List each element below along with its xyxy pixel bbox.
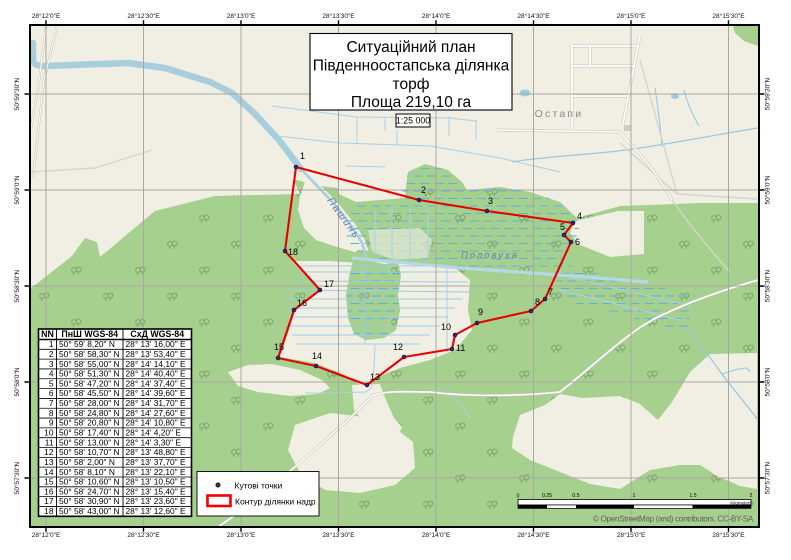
svg-text:28° 14' 14,10" E: 28° 14' 14,10" E <box>126 359 186 369</box>
svg-text:50° 58' 55,00" N: 50° 58' 55,00" N <box>59 359 120 369</box>
svg-text:28°14'30"E: 28°14'30"E <box>517 12 550 20</box>
svg-text:Південноостапська ділянка: Південноостапська ділянка <box>313 58 510 75</box>
svg-text:28°13'0"E: 28°13'0"E <box>227 531 256 539</box>
svg-text:50°58'0"N: 50°58'0"N <box>764 367 772 396</box>
svg-text:50° 58' 28,00" N: 50° 58' 28,00" N <box>59 398 120 408</box>
svg-text:50° 58' 58,30" N: 50° 58' 58,30" N <box>59 349 120 359</box>
svg-text:Остапи: Остапи <box>535 108 584 120</box>
svg-text:50° 58' 30,90" N: 50° 58' 30,90" N <box>59 496 120 506</box>
svg-text:28° 13' 23,60" E: 28° 13' 23,60" E <box>126 496 186 506</box>
svg-text:Площа 219,10 га: Площа 219,10 га <box>351 94 472 111</box>
svg-text:28°12'30"E: 28°12'30"E <box>127 12 160 20</box>
svg-text:28° 14' 3,30" E: 28° 14' 3,30" E <box>126 437 182 447</box>
svg-text:28°13'30"E: 28°13'30"E <box>322 531 355 539</box>
svg-text:14: 14 <box>44 467 54 477</box>
svg-text:12: 12 <box>44 447 54 457</box>
svg-text:28° 14' 31,70" E: 28° 14' 31,70" E <box>126 398 186 408</box>
svg-text:8: 8 <box>49 408 54 418</box>
svg-text:2: 2 <box>421 185 426 195</box>
svg-text:2: 2 <box>49 349 54 359</box>
svg-text:15: 15 <box>44 477 54 487</box>
svg-text:28°13'30"E: 28°13'30"E <box>322 12 355 20</box>
svg-text:16: 16 <box>44 486 54 496</box>
svg-text:© OpenStreetMap (and) contribu: © OpenStreetMap (and) contributors. CC-B… <box>593 515 754 524</box>
svg-text:4: 4 <box>577 211 582 221</box>
svg-text:3: 3 <box>488 196 493 206</box>
svg-text:3: 3 <box>49 359 54 369</box>
svg-text:15: 15 <box>274 342 284 352</box>
svg-text:28° 13' 10,50" E: 28° 13' 10,50" E <box>126 477 186 487</box>
svg-text:11: 11 <box>45 437 54 447</box>
svg-text:6: 6 <box>575 237 580 247</box>
svg-text:50° 58' 24,80" N: 50° 58' 24,80" N <box>59 408 120 418</box>
svg-text:28° 13' 48,80" E: 28° 13' 48,80" E <box>126 447 186 457</box>
svg-text:11: 11 <box>456 343 465 353</box>
svg-text:50°59'30"N: 50°59'30"N <box>764 77 772 110</box>
svg-text:50°57'30"N: 50°57'30"N <box>13 461 21 494</box>
svg-text:12: 12 <box>393 342 403 352</box>
svg-text:28°12'0"E: 28°12'0"E <box>32 12 61 20</box>
svg-text:50°59'30"N: 50°59'30"N <box>13 77 21 110</box>
svg-text:торф: торф <box>393 76 430 93</box>
svg-text:28° 14' 27,60" E: 28° 14' 27,60" E <box>126 408 186 418</box>
svg-text:50° 58' 10,60" N: 50° 58' 10,60" N <box>59 477 120 487</box>
svg-text:50° 59' 8,20" N: 50° 59' 8,20" N <box>59 339 115 349</box>
svg-text:50° 58' 47,20" N: 50° 58' 47,20" N <box>59 378 120 388</box>
svg-text:28°14'0"E: 28°14'0"E <box>422 12 451 20</box>
svg-text:50° 58' 13,00" N: 50° 58' 13,00" N <box>59 437 120 447</box>
svg-text:28°15'30"E: 28°15'30"E <box>712 531 745 539</box>
svg-text:4: 4 <box>49 369 54 379</box>
svg-text:50°58'0"N: 50°58'0"N <box>13 367 21 396</box>
svg-text:17: 17 <box>44 496 54 506</box>
svg-text:6: 6 <box>49 388 54 398</box>
svg-text:50°59'0"N: 50°59'0"N <box>764 175 772 204</box>
svg-text:NN: NN <box>41 329 54 339</box>
svg-text:1:25 000: 1:25 000 <box>396 116 430 126</box>
svg-text:0: 0 <box>517 494 520 500</box>
svg-text:50°58'30"N: 50°58'30"N <box>764 269 772 302</box>
svg-text:10: 10 <box>44 428 54 438</box>
svg-text:Кутові точки: Кутові точки <box>235 481 283 491</box>
svg-text:1: 1 <box>49 339 54 349</box>
svg-text:50° 58' 17,40" N: 50° 58' 17,40" N <box>59 428 120 438</box>
svg-text:13: 13 <box>44 457 54 467</box>
svg-text:17: 17 <box>324 279 334 289</box>
svg-text:50° 58' 20,80" N: 50° 58' 20,80" N <box>59 418 120 428</box>
svg-text:14: 14 <box>312 351 322 361</box>
svg-text:28° 14' 39,60" E: 28° 14' 39,60" E <box>126 388 186 398</box>
svg-text:2: 2 <box>750 493 753 499</box>
svg-text:16: 16 <box>297 298 307 308</box>
svg-text:5: 5 <box>49 378 54 388</box>
svg-text:18: 18 <box>44 506 54 516</box>
svg-text:0.5: 0.5 <box>572 493 579 499</box>
svg-text:50° 58' 51,30" N: 50° 58' 51,30" N <box>59 369 120 379</box>
svg-text:50°57'30"N: 50°57'30"N <box>764 461 772 494</box>
svg-text:10: 10 <box>441 322 451 332</box>
svg-text:8: 8 <box>535 297 540 307</box>
svg-text:7: 7 <box>548 287 553 297</box>
svg-text:Kilometers: Kilometers <box>730 501 752 506</box>
svg-text:50° 58' 43,00" N: 50° 58' 43,00" N <box>59 506 120 516</box>
svg-text:1: 1 <box>633 493 636 499</box>
svg-text:50° 58' 24,70" N: 50° 58' 24,70" N <box>59 486 120 496</box>
svg-text:13: 13 <box>370 372 380 382</box>
svg-text:28°12'0"E: 28°12'0"E <box>32 531 61 539</box>
svg-text:0.25: 0.25 <box>542 493 552 499</box>
svg-text:50° 58' 8,10" N: 50° 58' 8,10" N <box>59 467 115 477</box>
svg-text:28° 13' 37,70" E: 28° 13' 37,70" E <box>126 457 186 467</box>
svg-text:50°58'30"N: 50°58'30"N <box>13 269 21 302</box>
svg-text:28° 14' 10,80" E: 28° 14' 10,80" E <box>126 418 186 428</box>
svg-text:28°15'0"E: 28°15'0"E <box>617 531 646 539</box>
svg-text:28° 13' 16,00" E: 28° 13' 16,00" E <box>126 339 186 349</box>
svg-text:9: 9 <box>478 307 483 317</box>
svg-text:Контур ділянки надр: Контур ділянки надр <box>235 497 316 507</box>
svg-text:5: 5 <box>560 222 565 232</box>
svg-text:28°14'30"E: 28°14'30"E <box>517 531 550 539</box>
svg-text:Половуха: Половуха <box>461 250 519 261</box>
svg-text:50°59'0"N: 50°59'0"N <box>13 175 21 204</box>
svg-text:ПнШ WGS-84: ПнШ WGS-84 <box>61 329 118 339</box>
svg-text:50° 58' 2,00" N: 50° 58' 2,00" N <box>59 457 115 467</box>
svg-text:28°13'0"E: 28°13'0"E <box>227 12 256 20</box>
svg-text:28°15'0"E: 28°15'0"E <box>617 12 646 20</box>
svg-text:28°15'30"E: 28°15'30"E <box>712 12 745 20</box>
svg-text:18: 18 <box>288 247 298 257</box>
svg-text:28° 14' 40,40" E: 28° 14' 40,40" E <box>126 369 186 379</box>
svg-text:9: 9 <box>49 418 54 428</box>
svg-text:28° 13' 53,40" E: 28° 13' 53,40" E <box>126 349 186 359</box>
svg-text:50° 58' 45,50" N: 50° 58' 45,50" N <box>59 388 120 398</box>
svg-text:28° 13' 22,10" E: 28° 13' 22,10" E <box>126 467 186 477</box>
svg-text:7: 7 <box>49 398 54 408</box>
svg-text:Ситуаційний план: Ситуаційний план <box>346 39 475 56</box>
svg-text:1: 1 <box>300 151 305 161</box>
svg-text:СхД WGS-84: СхД WGS-84 <box>130 329 184 339</box>
svg-text:1.5: 1.5 <box>689 493 696 499</box>
svg-text:28°14'0"E: 28°14'0"E <box>422 531 451 539</box>
svg-text:28° 13' 15,40" E: 28° 13' 15,40" E <box>126 486 186 496</box>
svg-text:28° 14' 37,40" E: 28° 14' 37,40" E <box>126 378 186 388</box>
svg-text:50° 58' 10,70" N: 50° 58' 10,70" N <box>59 447 120 457</box>
svg-text:28° 13' 12,60" E: 28° 13' 12,60" E <box>126 506 186 516</box>
svg-text:28°12'30"E: 28°12'30"E <box>127 531 160 539</box>
svg-text:28° 14' 4,20" E: 28° 14' 4,20" E <box>126 428 182 438</box>
